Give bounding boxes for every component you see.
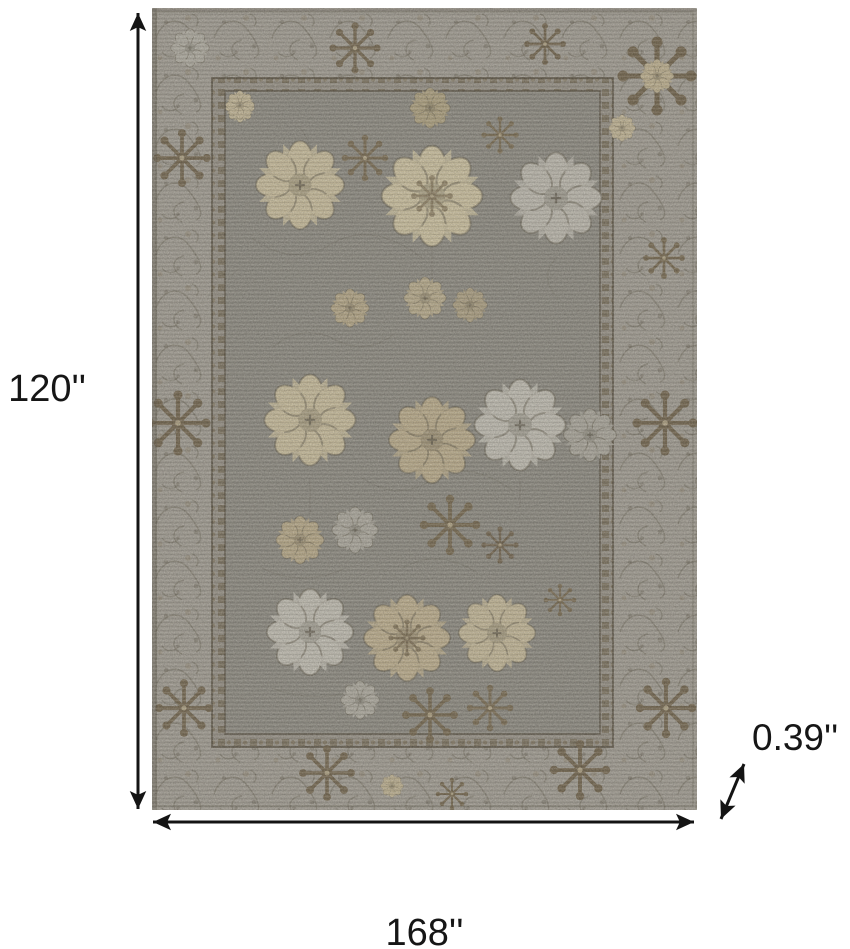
product-dimension-diagram: 120'' 168'' 0.39'' [0,0,850,949]
thickness-dimension-arrow [721,764,744,819]
height-dimension-label: 120'' [0,369,86,411]
width-dimension-label: 168'' [152,913,697,949]
thickness-dimension-label: 0.39'' [752,718,838,759]
rug-illustration [152,8,697,810]
rug-image [152,8,697,810]
